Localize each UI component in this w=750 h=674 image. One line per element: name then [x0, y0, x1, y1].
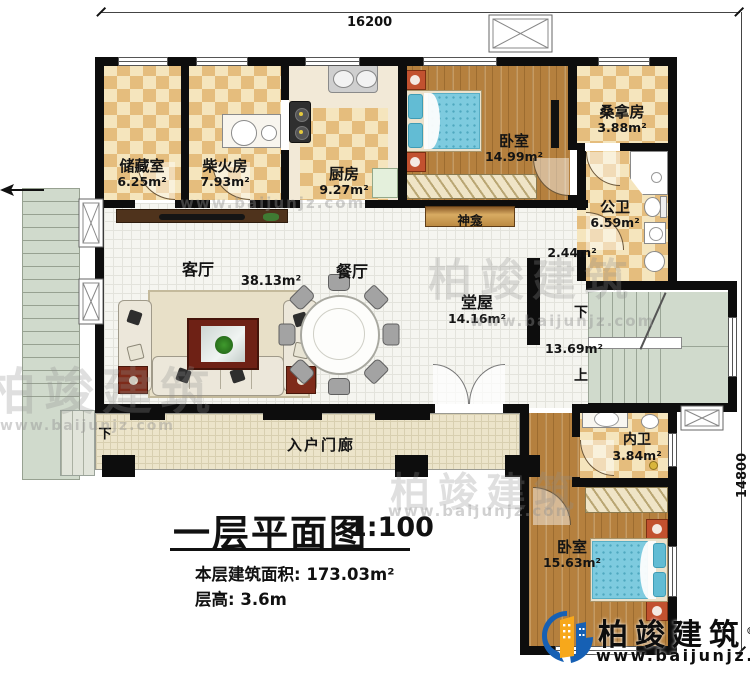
room-area: 3.84m² — [612, 449, 661, 463]
kitchen-sink — [328, 63, 378, 93]
room-name: 桑拿房 — [597, 104, 646, 121]
room-name: 堂屋 — [448, 294, 506, 312]
room-area: 7.93m² — [200, 175, 249, 189]
room-label-bedroom2: 卧室 15.63m² — [543, 539, 601, 570]
nightstand — [404, 70, 426, 90]
wall — [281, 57, 289, 100]
room-label-public-bath: 公卫 6.59m² — [590, 199, 639, 230]
room-label-inner-bath: 内卫 3.84m² — [612, 433, 661, 463]
window — [196, 57, 248, 66]
stairwell-area: 13.69m² — [545, 341, 603, 356]
room-area: 6.25m² — [117, 175, 166, 189]
sink-basin — [356, 70, 377, 88]
window — [668, 433, 677, 467]
wall — [281, 150, 289, 200]
window — [118, 57, 168, 66]
stairs-up-label: 上 — [574, 365, 588, 385]
room-label-dining: 餐厅 — [336, 258, 368, 282]
floor-height-line: 层高: 3.6m — [195, 586, 287, 610]
basin-small — [261, 125, 277, 141]
porch-side-steps — [60, 410, 95, 476]
floor-area-line: 本层建筑面积: 173.03m² — [195, 561, 394, 585]
coffee-table — [187, 318, 259, 370]
wall — [527, 258, 540, 345]
basin-large — [231, 120, 257, 146]
wall — [175, 200, 210, 208]
window — [423, 57, 497, 66]
room-area-living: 38.13m² — [241, 274, 301, 289]
wall — [668, 57, 677, 290]
wall — [572, 478, 668, 487]
stairs-down-label: 下 — [574, 302, 588, 322]
wall — [572, 404, 580, 437]
staircase — [588, 292, 728, 403]
dimension-line-top — [100, 12, 740, 13]
wall — [505, 404, 529, 413]
wall — [250, 200, 300, 208]
wall — [577, 143, 585, 151]
window — [728, 317, 737, 377]
plant-decor — [263, 213, 279, 221]
tv — [159, 214, 245, 220]
wall — [568, 57, 577, 150]
room-name: 内卫 — [612, 433, 661, 449]
dining-chair — [279, 324, 296, 346]
room-label-firewood: 柴火房 7.93m² — [200, 158, 249, 189]
room-area: 3.88m² — [597, 121, 646, 135]
room-label-living: 客厅 — [182, 256, 214, 280]
room-name: 厨房 — [319, 166, 368, 183]
washbasin — [644, 251, 665, 272]
bedroom1-tv — [551, 100, 559, 148]
side-table-decor — [129, 376, 138, 385]
bed2-pillow — [653, 543, 666, 568]
wall — [181, 57, 189, 200]
brand-logo-icon — [538, 608, 596, 668]
bedroom2-closet — [585, 487, 668, 513]
tv-cabinet — [116, 209, 288, 223]
dimension-top-value: 16200 — [347, 15, 392, 30]
wall — [620, 143, 668, 151]
dining-table — [300, 295, 380, 375]
dining-chair — [328, 378, 350, 395]
room-name: 卧室 — [485, 133, 543, 150]
wall — [375, 404, 430, 420]
shower-drain — [651, 172, 662, 183]
wall — [102, 455, 135, 477]
wall — [586, 281, 737, 290]
room-label-hall: 堂屋 14.16m² — [448, 294, 506, 326]
burner-flame — [299, 130, 303, 134]
stair-treads — [23, 195, 79, 397]
wall — [728, 283, 737, 317]
fridge — [372, 168, 398, 198]
title-underline — [170, 548, 410, 551]
side-table-left — [118, 366, 148, 394]
entry-arrow-icon — [0, 182, 46, 198]
window-x-box — [78, 198, 104, 248]
nightstand — [404, 152, 426, 172]
dimension-right-value: 14800 — [735, 453, 750, 498]
window-x-box — [680, 405, 724, 431]
room-label-sauna: 桑拿房 3.88m² — [597, 104, 646, 135]
room-area: 14.16m² — [448, 312, 506, 326]
washer-door — [649, 227, 663, 241]
brand-website: www.baijunjz.com — [596, 646, 750, 665]
wall — [505, 455, 540, 477]
shrine-cabinet: 神龛 — [425, 206, 515, 227]
bedroom1-wardrobe — [406, 174, 537, 199]
window-x-box — [488, 14, 553, 53]
wall — [668, 412, 677, 433]
wall — [520, 413, 529, 655]
wall — [130, 404, 165, 420]
room-label-bedroom1: 卧室 14.99m² — [485, 133, 543, 164]
bed1-pillow — [408, 123, 423, 148]
room-name: 卧室 — [543, 539, 601, 556]
dimension-line-right — [741, 12, 742, 655]
table-inner-ring — [313, 308, 365, 360]
floor-plan-page: 神龛 — [0, 0, 750, 674]
porch-down-label: 下 — [98, 423, 111, 442]
wall — [572, 404, 668, 413]
room-area: 14.99m² — [485, 150, 543, 164]
stair-run-down — [588, 349, 668, 403]
window — [305, 57, 360, 66]
washing-machine — [644, 222, 666, 244]
wall — [263, 404, 322, 420]
firewood-counter — [222, 114, 281, 148]
window-x-box — [78, 278, 104, 325]
room-area: 15.63m² — [543, 556, 601, 570]
window — [598, 57, 650, 66]
room-area: 9.27m² — [319, 183, 368, 197]
vanity-basin — [594, 411, 619, 427]
toilet — [644, 197, 661, 217]
room-label-porch: 入户门廊 — [287, 434, 355, 455]
window — [668, 546, 677, 597]
wall — [398, 57, 407, 200]
dining-set — [296, 291, 380, 375]
room-label-storage: 储藏室 6.25m² — [117, 158, 166, 189]
stove — [289, 101, 311, 143]
registered-mark: ® — [746, 626, 750, 637]
niche-area: 2.44m² — [547, 245, 596, 260]
room-name: 柴火房 — [200, 158, 249, 175]
sink-basin — [333, 70, 354, 88]
bed1-pillow — [408, 94, 423, 119]
table-plant — [215, 336, 233, 354]
shrine-label: 神龛 — [457, 210, 482, 229]
toilet — [641, 414, 659, 429]
burner-flame — [299, 112, 303, 116]
bed2-pillow — [653, 572, 666, 597]
room-area: 6.59m² — [590, 216, 639, 230]
room-name: 储藏室 — [117, 158, 166, 175]
room-name: 公卫 — [590, 199, 639, 216]
wall — [395, 455, 428, 477]
page-title-scale: 1:100 — [348, 512, 434, 543]
dining-chair — [383, 324, 400, 346]
wall — [668, 467, 677, 546]
nightstand — [646, 519, 668, 539]
entry-threshold — [433, 404, 505, 413]
toilet-tank — [660, 196, 667, 218]
room-label-kitchen: 厨房 9.27m² — [319, 166, 368, 197]
